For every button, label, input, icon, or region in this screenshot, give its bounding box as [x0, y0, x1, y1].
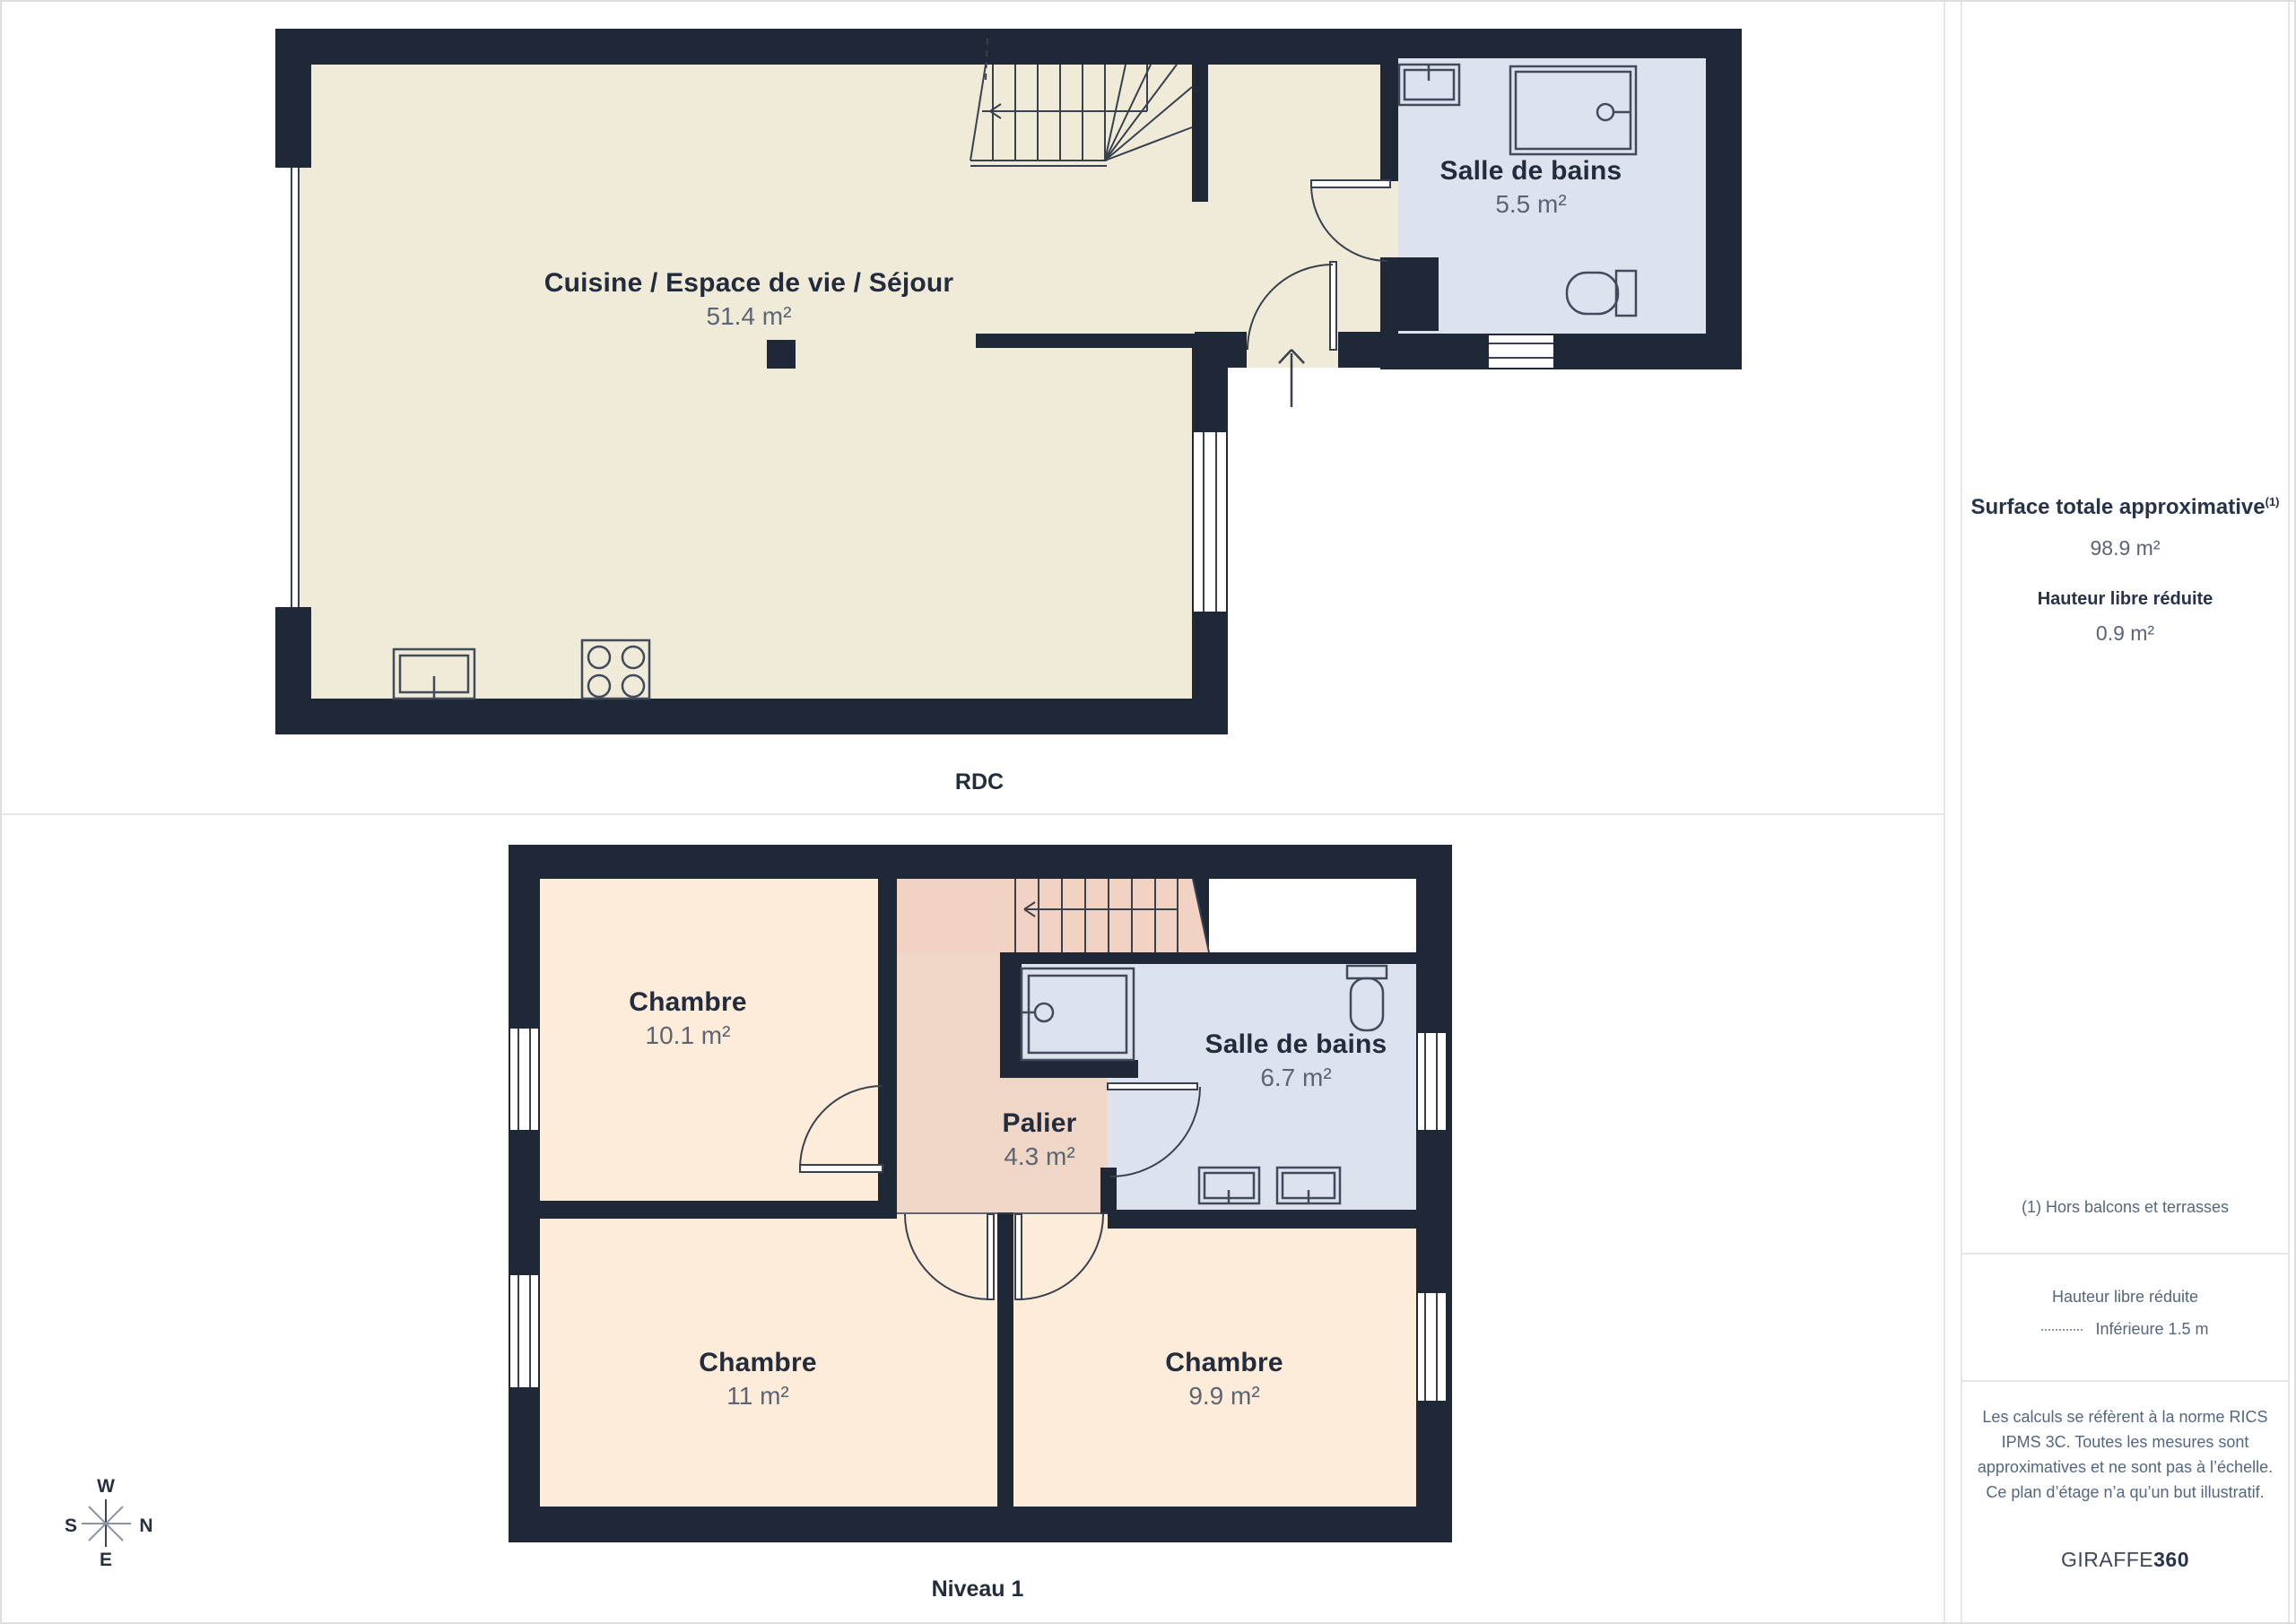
room-area: 6.7 m² — [1205, 1061, 1387, 1094]
room-name: Chambre — [699, 1346, 816, 1379]
n1-window-left-lower — [510, 1275, 538, 1387]
room-label-bedroom2: Chambre 11 m² — [699, 1346, 816, 1412]
dotted-line-icon — [2041, 1329, 2083, 1331]
room-name: Salle de bains — [1440, 154, 1622, 187]
total-area-label: Surface totale approximative — [1970, 495, 2265, 519]
n1-stairwell-void — [1209, 879, 1416, 952]
room-area: 4.3 m² — [1003, 1140, 1077, 1173]
room-name: Chambre — [629, 986, 746, 1019]
sidebar-divider-1 — [1961, 1253, 2289, 1255]
room-area: 5.5 m² — [1440, 187, 1622, 221]
brand-logo: GIRAFFE360 — [1961, 1548, 2289, 1572]
compass-icon — [82, 1499, 131, 1547]
room-label-rdc-bathroom: Salle de bains 5.5 m² — [1440, 154, 1622, 221]
n1-window-right-upper — [1418, 1033, 1446, 1130]
room-area: 9.9 m² — [1165, 1379, 1283, 1412]
rdc-entrance-arrow — [1279, 350, 1304, 407]
room-label-palier: Palier 4.3 m² — [1003, 1107, 1077, 1173]
rdc-stair-wall-stub — [1192, 65, 1208, 202]
room-label-living: Cuisine / Espace de vie / Séjour 51.4 m² — [544, 266, 954, 333]
rdc-floorplan — [2, 2, 1944, 813]
footnote-marker: (1) — [2266, 495, 2280, 508]
floor-label-rdc: RDC — [955, 769, 1004, 795]
floor-label-niveau1: Niveau 1 — [932, 1576, 1024, 1602]
n1-floors — [540, 879, 1416, 1507]
rdc-window-bathroom — [1489, 335, 1553, 368]
niveau1-floorplan — [2, 813, 1944, 1624]
room-name: Salle de bains — [1205, 1028, 1387, 1061]
room-name: Chambre — [1165, 1346, 1283, 1379]
room-name: Cuisine / Espace de vie / Séjour — [544, 266, 954, 300]
reduced-height-value: 0.9 m² — [1961, 621, 2289, 646]
n1-window-right-lower — [1418, 1293, 1446, 1401]
area-footnote: (1) Hors balcons et terrasses — [1961, 1198, 2289, 1217]
room-area: 51.4 m² — [544, 300, 954, 333]
compass-south-label: S — [65, 1515, 77, 1537]
reduced-height-title: Hauteur libre réduite — [1961, 589, 2289, 610]
main-sidebar-divider — [1944, 2, 1945, 1624]
room-label-bedroom3: Chambre 9.9 m² — [1165, 1346, 1283, 1412]
room-area: 10.1 m² — [629, 1019, 746, 1052]
total-area-title: Surface totale approximative(1) — [1961, 495, 2289, 520]
sidebar-divider-2 — [1961, 1380, 2289, 1382]
n1-window-left-upper — [510, 1029, 538, 1130]
rdc-hall-floor — [1228, 65, 1380, 368]
brand-name: GIRAFFE — [2061, 1548, 2153, 1571]
legend-entry: Inférieure 1.5 m — [2095, 1320, 2208, 1339]
floor-panel-divider — [2, 813, 1944, 815]
floorplan-page: Cuisine / Espace de vie / Séjour 51.4 m²… — [0, 0, 2296, 1624]
room-name: Palier — [1003, 1107, 1077, 1140]
legend-title: Hauteur libre réduite — [1961, 1288, 2289, 1307]
room-area: 11 m² — [699, 1379, 816, 1412]
brand-suffix: 360 — [2153, 1548, 2189, 1571]
compass-west-label: W — [97, 1476, 115, 1498]
room-label-n1-bathroom: Salle de bains 6.7 m² — [1205, 1028, 1387, 1094]
summary-sidebar: Surface totale approximative(1) 98.9 m² … — [1961, 2, 2289, 1624]
compass-north-label: N — [139, 1515, 152, 1537]
rdc-window-left — [275, 168, 299, 607]
room-label-bedroom1: Chambre 10.1 m² — [629, 986, 746, 1052]
compass-east-label: E — [100, 1550, 112, 1571]
rdc-window-right — [1194, 432, 1226, 612]
total-area-value: 98.9 m² — [1961, 536, 2289, 560]
disclaimer-text: Les calculs se réfèrent à la norme RICS … — [1970, 1405, 2280, 1506]
rdc-column — [767, 340, 796, 369]
n1-stairs-floor — [897, 879, 1209, 952]
legend-row: Inférieure 1.5 m — [1961, 1320, 2289, 1339]
